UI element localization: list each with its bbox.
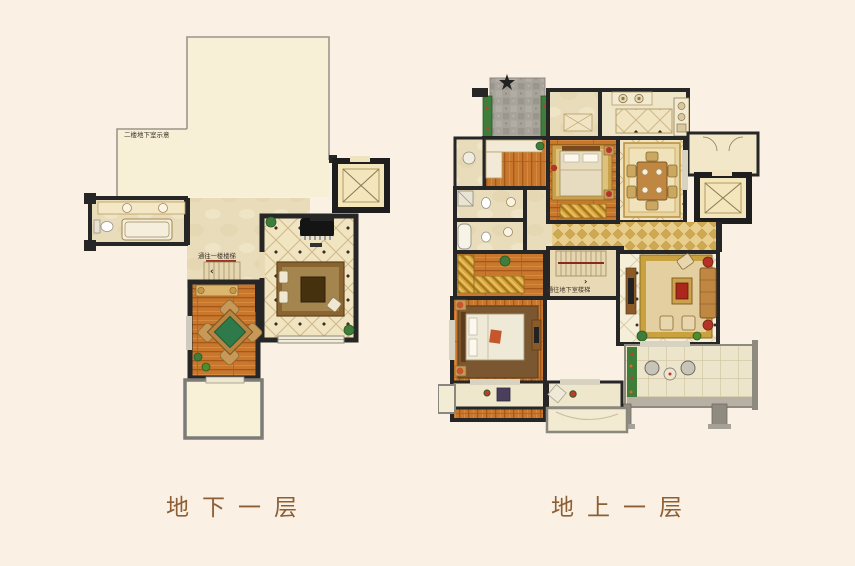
flower-bed	[627, 347, 637, 403]
dining-chair-icon	[668, 186, 677, 198]
bed-icon	[461, 312, 524, 362]
bench	[560, 204, 606, 218]
toilet-icon	[482, 232, 491, 242]
mudroom	[484, 138, 548, 188]
tv-dresser	[532, 320, 541, 350]
terrace	[612, 340, 758, 429]
console-table	[196, 285, 238, 296]
bathroom-2	[455, 220, 525, 252]
basement-bathroom	[84, 193, 186, 251]
ground-stairs-label: 通往地下室楼梯	[547, 286, 590, 294]
patio-chair-icon	[645, 361, 659, 375]
bathroom-1	[455, 188, 525, 220]
elevator-lobby	[688, 133, 758, 175]
kitchen-island	[616, 109, 672, 133]
basement-game-room	[186, 282, 263, 378]
walk-in-closet	[455, 252, 545, 298]
armchair-icon	[279, 271, 288, 283]
armchair-icon	[682, 316, 695, 330]
armchair-icon	[279, 291, 288, 303]
plant-icon	[344, 325, 354, 335]
elevator-shaft	[329, 155, 390, 213]
washer-icon	[463, 152, 475, 164]
foyer	[548, 90, 600, 138]
dining-room	[618, 138, 685, 222]
appliance-column	[674, 98, 689, 136]
kitchen	[600, 90, 689, 138]
basement-stairs-arrow-icon: ‹	[210, 267, 214, 277]
door-opening	[259, 252, 265, 278]
basement-caption: 地下一层	[123, 488, 343, 522]
floor-lamp-icon	[703, 320, 713, 330]
ground-stairs-icon	[556, 251, 606, 276]
window	[186, 316, 192, 350]
basement-family-room	[259, 216, 356, 343]
counter	[612, 92, 652, 105]
sink-icon	[507, 198, 516, 207]
wardrobe	[458, 255, 474, 293]
armchair-icon	[660, 316, 673, 330]
red-cushion	[489, 329, 502, 343]
projection-label: 二楼地下室示意	[124, 130, 170, 139]
window	[449, 320, 455, 360]
elevator-door	[712, 170, 732, 176]
bump-out-balcony	[547, 408, 627, 432]
sink-icon	[504, 228, 513, 237]
shower-icon	[458, 191, 473, 206]
sink-icon	[159, 204, 168, 213]
ground-floorplan: › 通往地下室楼梯	[438, 62, 763, 462]
plant-icon	[266, 217, 276, 227]
sink-icon	[123, 204, 132, 213]
basement-stairs-label: 通往一楼楼梯	[198, 251, 236, 260]
plant-icon	[202, 363, 210, 371]
red-cushion	[551, 165, 557, 171]
gravel-band	[627, 397, 753, 406]
door-mat	[564, 114, 592, 131]
counter	[486, 140, 542, 152]
elevator-door	[350, 156, 370, 162]
flower-pot-icon	[570, 391, 576, 397]
bed-icon	[560, 146, 602, 196]
plant-icon	[194, 353, 202, 361]
dining-chair-icon	[627, 186, 636, 198]
window	[560, 379, 600, 385]
ground-stairs-arrow-icon: ›	[584, 277, 587, 286]
dining-table	[637, 162, 667, 200]
lamp-icon	[606, 147, 612, 153]
elevator-shaft	[694, 170, 752, 224]
plant-icon	[500, 256, 510, 266]
coffee-table	[672, 278, 692, 304]
vanity-counter	[98, 202, 185, 214]
dining-chair-icon	[646, 201, 658, 210]
dining-chair-icon	[668, 165, 677, 177]
side-terrace	[438, 385, 455, 413]
plant-icon	[536, 142, 544, 150]
lamp-icon	[606, 191, 612, 197]
ground-stairs: › 通往地下室楼梯	[547, 248, 622, 298]
lamp-icon	[457, 368, 464, 375]
bedroom-2	[548, 138, 618, 222]
flower-pot-icon	[484, 390, 490, 396]
window	[278, 336, 344, 343]
floor-lamp-icon	[703, 257, 713, 267]
patio-table-icon	[664, 368, 676, 380]
wardrobe	[474, 276, 524, 293]
toilet-icon	[482, 198, 491, 209]
storage-box	[497, 388, 510, 401]
laundry-room	[455, 138, 484, 188]
plant-icon	[637, 331, 647, 341]
counter	[486, 152, 502, 178]
living-room	[618, 252, 718, 344]
sofa-icon	[700, 268, 716, 318]
basement-floorplan: 二楼地下室示意 通往一楼楼梯 ‹	[40, 25, 450, 450]
dining-chair-icon	[627, 165, 636, 177]
balcony	[452, 382, 622, 408]
window	[206, 377, 244, 383]
tv-console	[626, 268, 636, 314]
lamp-icon	[457, 302, 464, 309]
dining-chair-icon	[646, 152, 658, 161]
window	[470, 379, 520, 385]
projection-outline: 二楼地下室示意	[117, 37, 329, 199]
plant-icon	[693, 332, 701, 340]
bathtub-icon	[458, 224, 471, 249]
window	[640, 341, 690, 347]
basement-courtyard	[185, 377, 262, 438]
patio-chair-icon	[681, 361, 695, 375]
ground-caption: 地上一层	[508, 488, 728, 522]
floorplan-poster: 二楼地下室示意 通往一楼楼梯 ‹	[0, 0, 855, 566]
bathtub-icon	[122, 219, 172, 240]
window	[682, 150, 688, 190]
